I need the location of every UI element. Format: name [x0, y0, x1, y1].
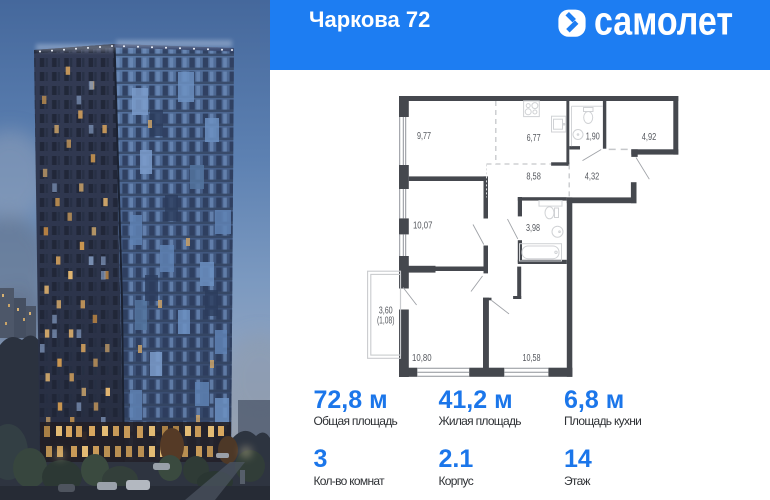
svg-text:1,90: 1,90 [586, 132, 600, 143]
svg-text:3,98: 3,98 [526, 223, 540, 234]
svg-text:9,77: 9,77 [417, 131, 431, 142]
svg-text:6,77: 6,77 [527, 133, 541, 144]
svg-text:10,07: 10,07 [413, 221, 433, 232]
svg-text:4,32: 4,32 [585, 172, 600, 183]
svg-text:(1,08): (1,08) [377, 316, 395, 327]
svg-text:самолет: самолет [594, 0, 733, 43]
svg-text:4,92: 4,92 [642, 132, 657, 143]
svg-text:8,58: 8,58 [526, 172, 541, 183]
svg-text:10,58: 10,58 [523, 353, 541, 364]
svg-text:10,80: 10,80 [412, 353, 432, 364]
